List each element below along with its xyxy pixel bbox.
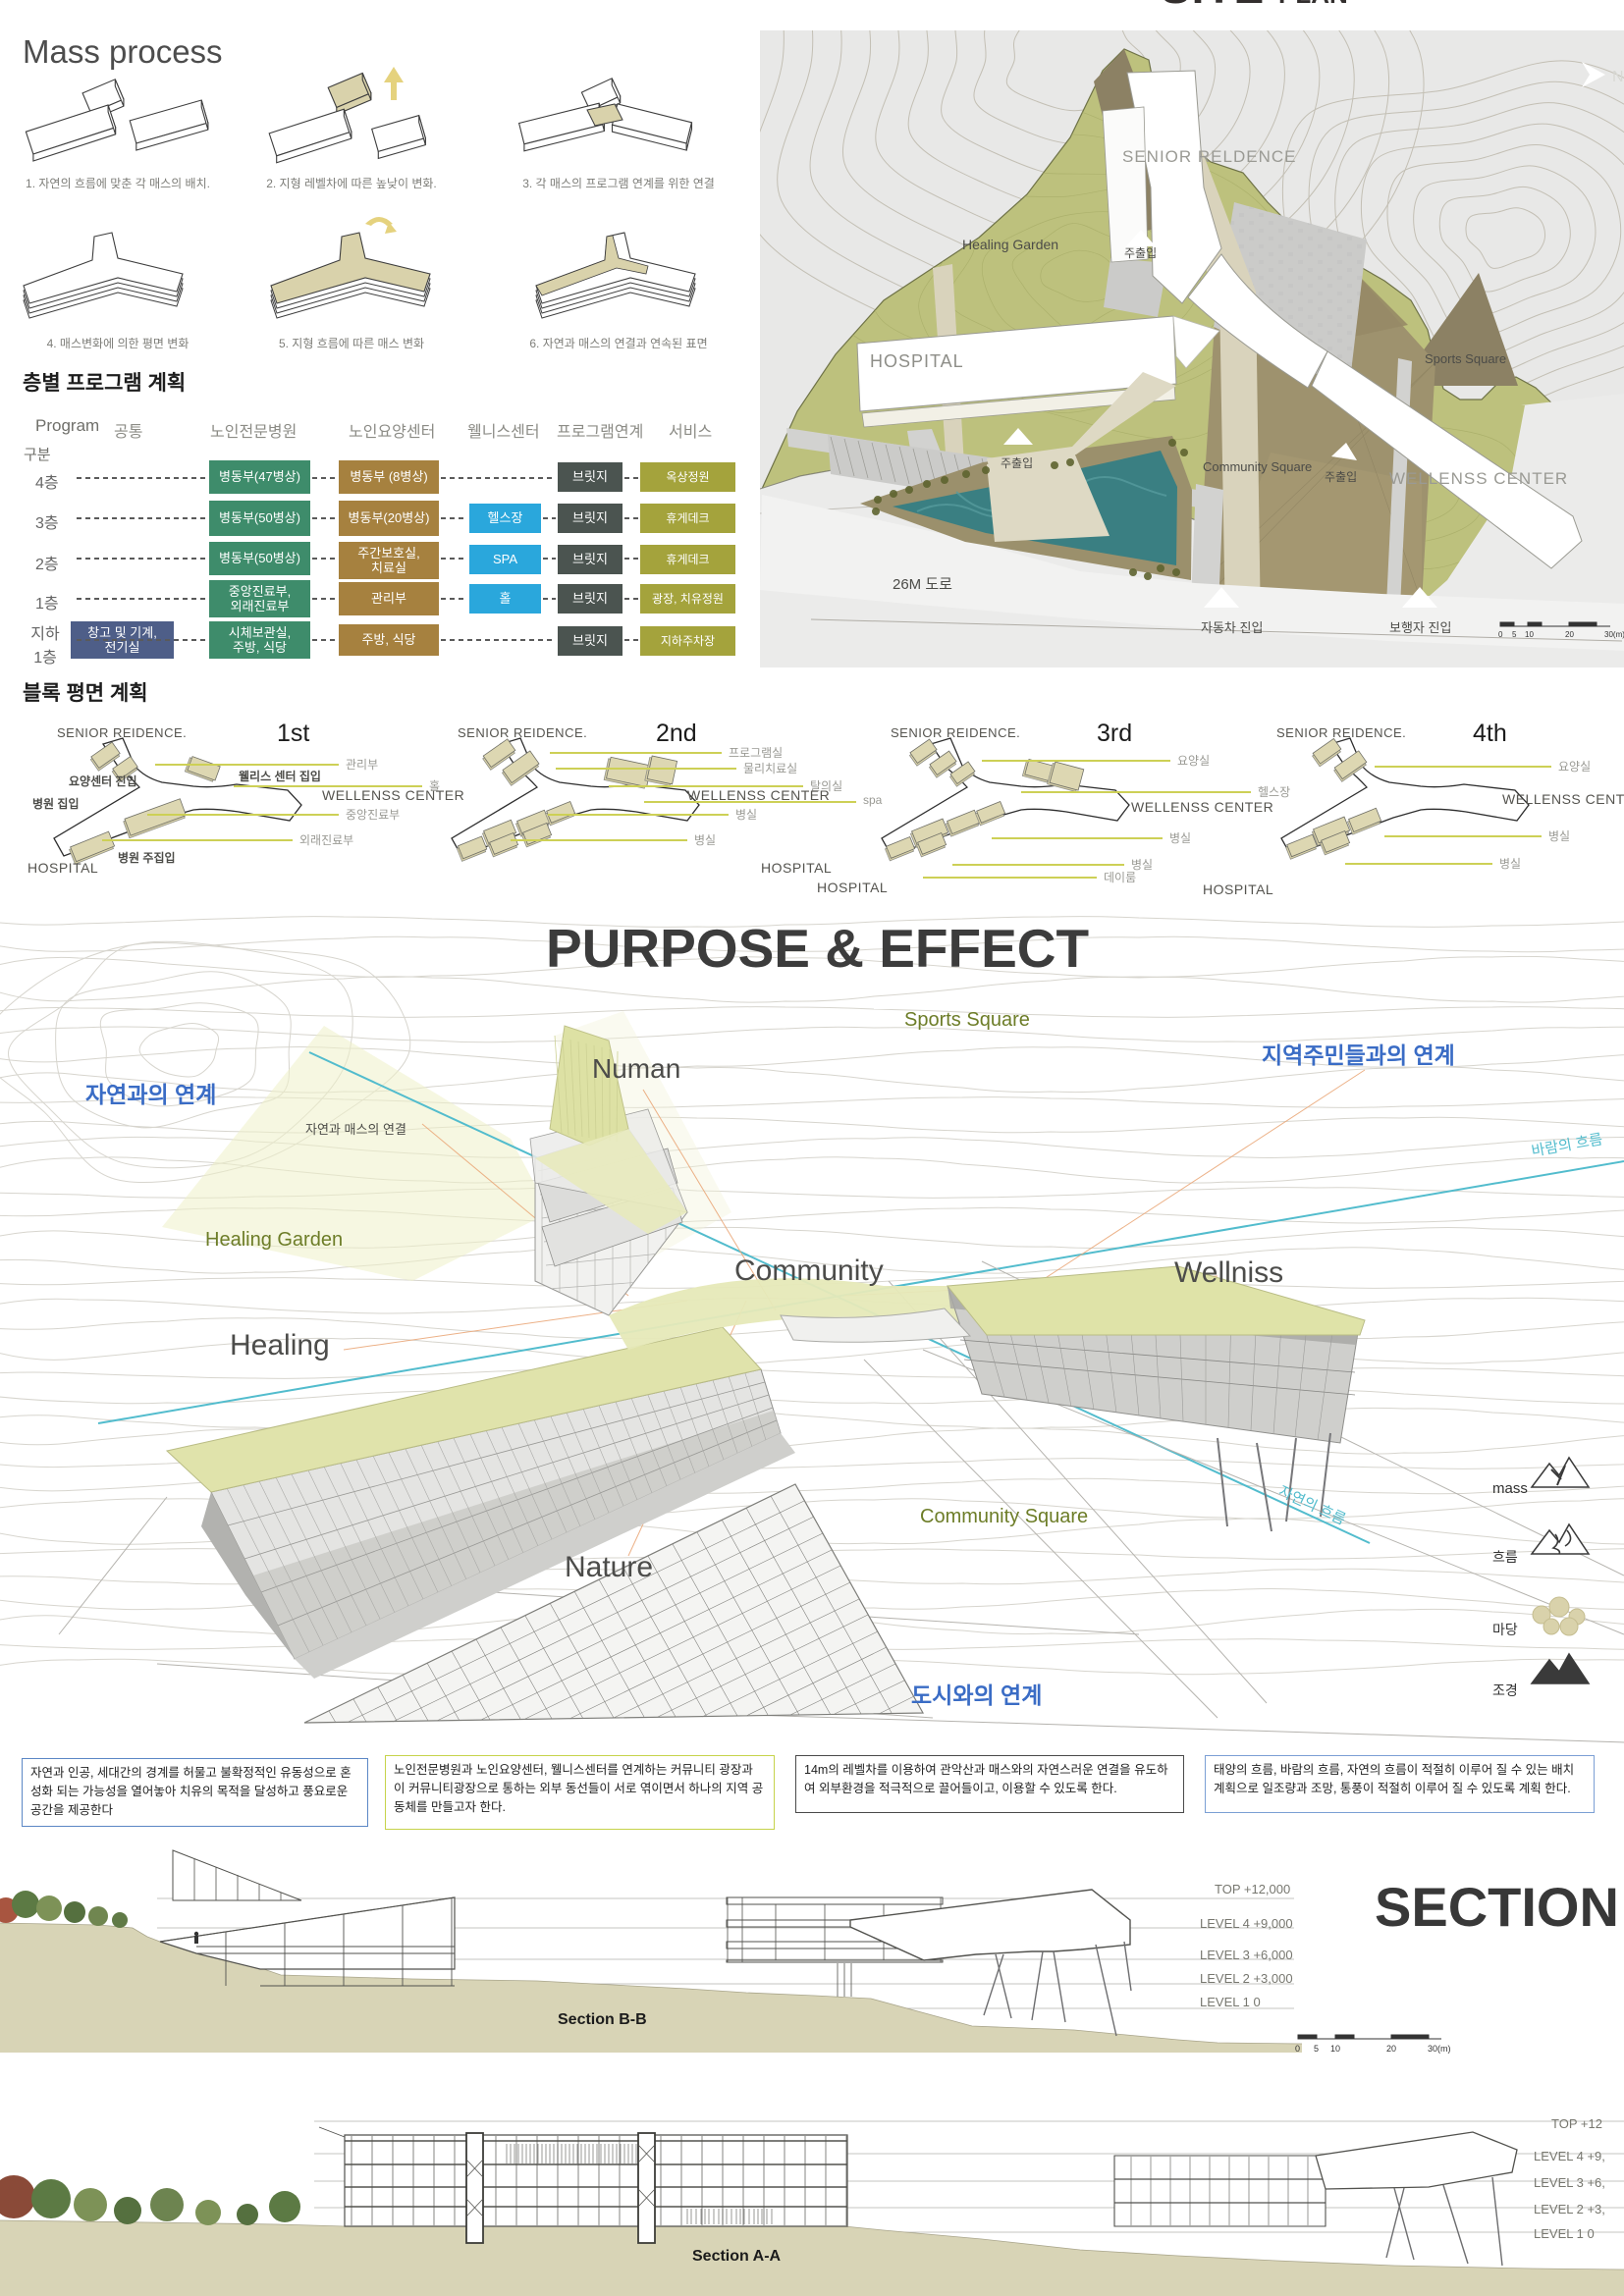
svg-text:LEVEL 4 +9,: LEVEL 4 +9, bbox=[1534, 2149, 1605, 2163]
svg-text:LEVEL 3 +6,000: LEVEL 3 +6,000 bbox=[1200, 1948, 1293, 1962]
svg-text:N: N bbox=[1612, 69, 1624, 85]
svg-text:5: 5 bbox=[1512, 630, 1517, 639]
svg-text:주출입: 주출입 bbox=[1001, 456, 1033, 470]
svg-text:HOSPITAL: HOSPITAL bbox=[870, 351, 964, 371]
svg-text:20: 20 bbox=[1386, 2044, 1396, 2054]
svg-text:0: 0 bbox=[1295, 2044, 1300, 2054]
svg-text:Healing Garden: Healing Garden bbox=[962, 237, 1058, 252]
svg-text:주출입: 주출입 bbox=[1325, 470, 1357, 484]
svg-text:주출입: 주출입 bbox=[1124, 246, 1157, 260]
svg-text:10: 10 bbox=[1330, 2044, 1340, 2054]
svg-text:보행자 진입: 보행자 진입 bbox=[1389, 620, 1451, 635]
svg-text:30(m): 30(m) bbox=[1604, 630, 1624, 639]
svg-text:LEVEL 3 +6,: LEVEL 3 +6, bbox=[1534, 2175, 1605, 2190]
svg-text:SENIOR RELDENCE: SENIOR RELDENCE bbox=[1122, 147, 1296, 166]
svg-text:30(m): 30(m) bbox=[1428, 2044, 1451, 2054]
svg-text:20: 20 bbox=[1565, 630, 1574, 639]
svg-text:SECTION: SECTION bbox=[1375, 1876, 1619, 1938]
svg-text:0: 0 bbox=[1498, 630, 1503, 639]
svg-text:26M 도로: 26M 도로 bbox=[893, 576, 952, 593]
svg-text:Section B-B: Section B-B bbox=[558, 2011, 647, 2028]
svg-text:Sports Square: Sports Square bbox=[1425, 351, 1506, 366]
svg-text:LEVEL 2 +3,000: LEVEL 2 +3,000 bbox=[1200, 1971, 1293, 1986]
svg-text:Section A-A: Section A-A bbox=[692, 2248, 782, 2265]
svg-text:WELLENSS CENTER: WELLENSS CENTER bbox=[1389, 469, 1568, 488]
svg-text:TOP +12,000: TOP +12,000 bbox=[1215, 1882, 1290, 1896]
svg-text:10: 10 bbox=[1525, 630, 1534, 639]
svg-text:LEVEL 1 0: LEVEL 1 0 bbox=[1200, 1995, 1261, 2009]
svg-text:Community Square: Community Square bbox=[1203, 459, 1312, 474]
svg-text:LEVEL 2 +3,: LEVEL 2 +3, bbox=[1534, 2202, 1605, 2216]
svg-text:LEVEL 4 +9,000: LEVEL 4 +9,000 bbox=[1200, 1916, 1293, 1931]
svg-text:TOP +12: TOP +12 bbox=[1551, 2116, 1602, 2131]
svg-text:LEVEL 1 0: LEVEL 1 0 bbox=[1534, 2226, 1595, 2241]
svg-text:자동차 진입: 자동차 진입 bbox=[1201, 620, 1263, 635]
svg-text:5: 5 bbox=[1314, 2044, 1319, 2054]
